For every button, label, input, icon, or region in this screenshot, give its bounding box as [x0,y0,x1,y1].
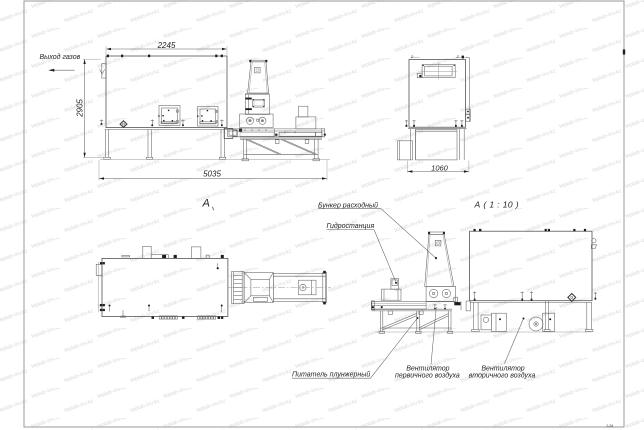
svg-text:1-24: 1-24 [606,424,613,428]
svg-text:Бункер расходный: Бункер расходный [318,201,378,209]
svg-text:А ( 1 : 10 ): А ( 1 : 10 ) [474,200,519,210]
svg-text:5035: 5035 [203,169,221,178]
svg-text:вторичного воздуха: вторичного воздуха [469,372,536,380]
svg-text:Вентилятор: Вентилятор [406,366,449,373]
svg-text:А: А [202,198,210,210]
svg-text:Питатель плунжерный: Питатель плунжерный [292,370,370,378]
svg-text:Гидростанция: Гидростанция [327,222,375,230]
svg-text:первичного воздуха: первичного воздуха [395,372,460,380]
svg-text:1060: 1060 [431,164,449,173]
svg-text:2245: 2245 [157,41,176,50]
svg-text:2905: 2905 [76,99,85,118]
svg-text:Вентилятор: Вентилятор [481,366,524,373]
svg-text:Выход газов: Выход газов [40,53,81,61]
